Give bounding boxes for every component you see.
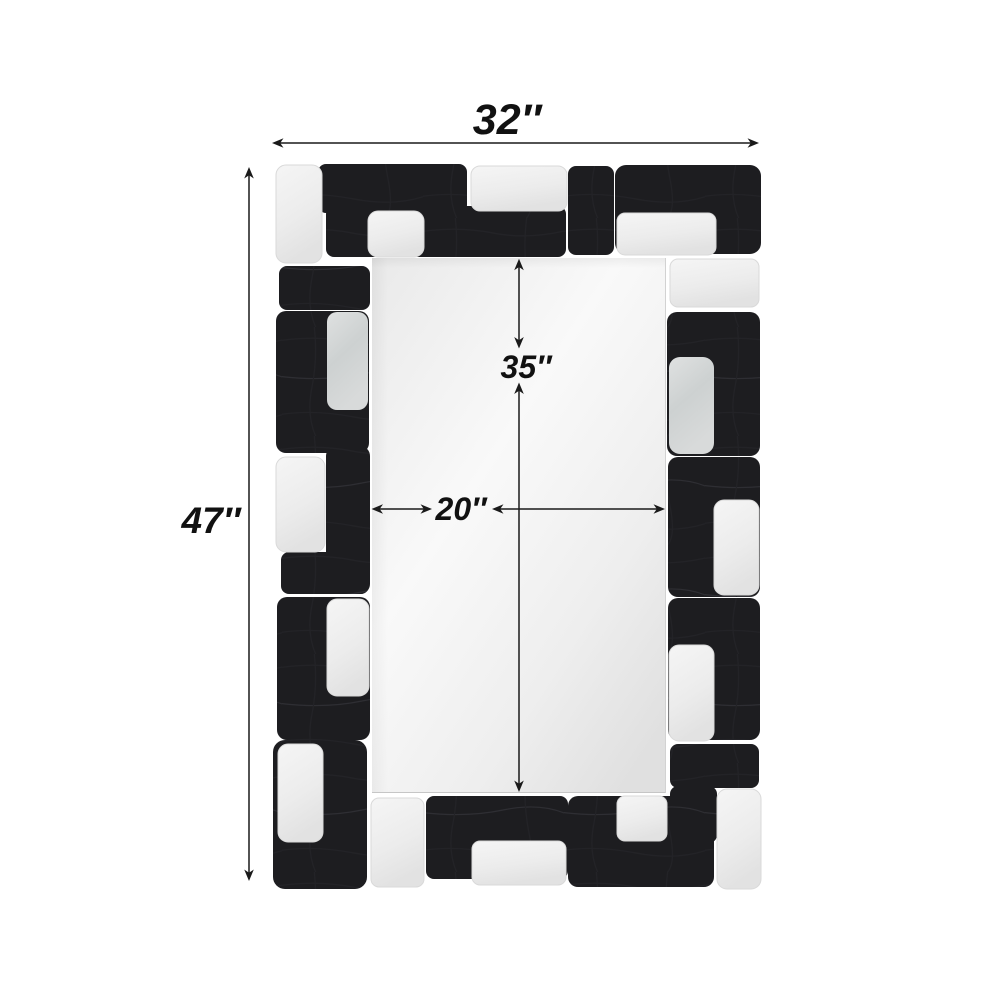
svg-text:20″: 20″ — [435, 491, 489, 527]
svg-text:47″: 47″ — [181, 500, 243, 541]
svg-text:35″: 35″ — [501, 349, 554, 385]
svg-text:32″: 32″ — [473, 96, 544, 144]
